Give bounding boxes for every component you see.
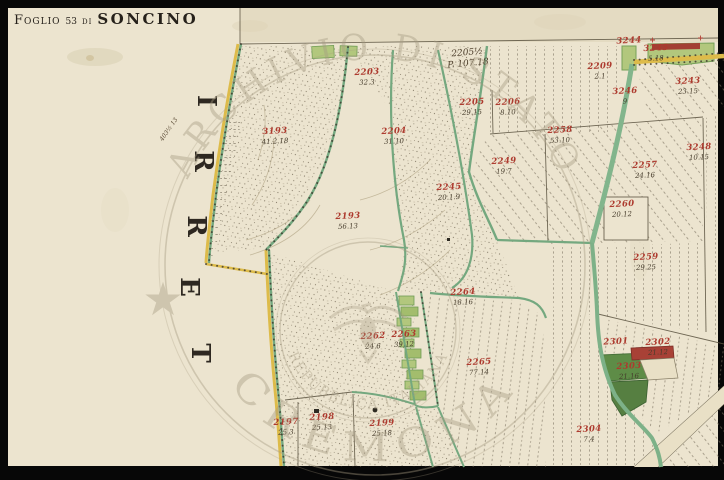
sheet-title: Foglio 53 di SONCINO — [14, 10, 198, 28]
margin-letter: T — [185, 343, 215, 362]
open-parcel — [604, 197, 648, 240]
margin-letter: E — [174, 277, 204, 297]
survey-note: 2205½ P. 107.18 — [446, 46, 489, 72]
margin-letter: R — [181, 215, 211, 237]
margin-letter: R — [188, 150, 218, 172]
title-foglio: Foglio — [14, 13, 61, 28]
title-sheet-number: 53 — [66, 17, 77, 27]
map-sheet: Foglio 53 di SONCINO IRRET 2205½ P. 107.… — [0, 0, 724, 480]
title-di: di — [82, 16, 92, 27]
map-linework — [0, 0, 724, 480]
title-place: SONCINO — [97, 10, 198, 28]
margin-letter: I — [191, 95, 221, 107]
